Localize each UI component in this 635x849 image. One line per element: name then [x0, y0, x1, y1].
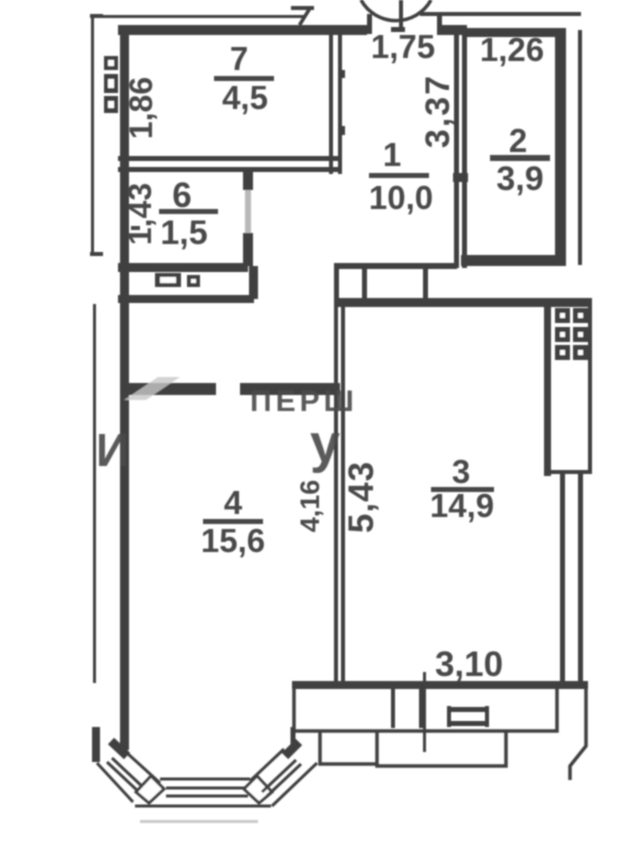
svg-text:3,37: 3,37 — [419, 74, 457, 148]
svg-text:1,75: 1,75 — [371, 28, 435, 65]
svg-text:4,16: 4,16 — [295, 480, 325, 533]
svg-text:1: 1 — [383, 136, 401, 173]
svg-text:14,9: 14,9 — [430, 487, 494, 524]
svg-text:1,26: 1,26 — [480, 31, 544, 68]
svg-text:И: И — [96, 424, 129, 476]
svg-text:1,86: 1,86 — [123, 77, 159, 139]
svg-text:4: 4 — [224, 484, 243, 521]
svg-text:4,5: 4,5 — [222, 79, 268, 116]
svg-text:10,0: 10,0 — [369, 179, 433, 216]
svg-text:1,5: 1,5 — [160, 214, 207, 252]
svg-text:3,9: 3,9 — [496, 160, 543, 198]
svg-text:7: 7 — [230, 40, 248, 77]
svg-text:3,10: 3,10 — [435, 645, 503, 684]
svg-text:3: 3 — [452, 453, 470, 490]
svg-text:ПЕРШ: ПЕРШ — [250, 385, 358, 418]
svg-text:1,43: 1,43 — [122, 183, 158, 245]
svg-text:5,43: 5,43 — [342, 461, 381, 533]
svg-text:15,6: 15,6 — [201, 522, 265, 559]
svg-text:2: 2 — [509, 122, 527, 159]
svg-text:у: у — [310, 414, 340, 474]
